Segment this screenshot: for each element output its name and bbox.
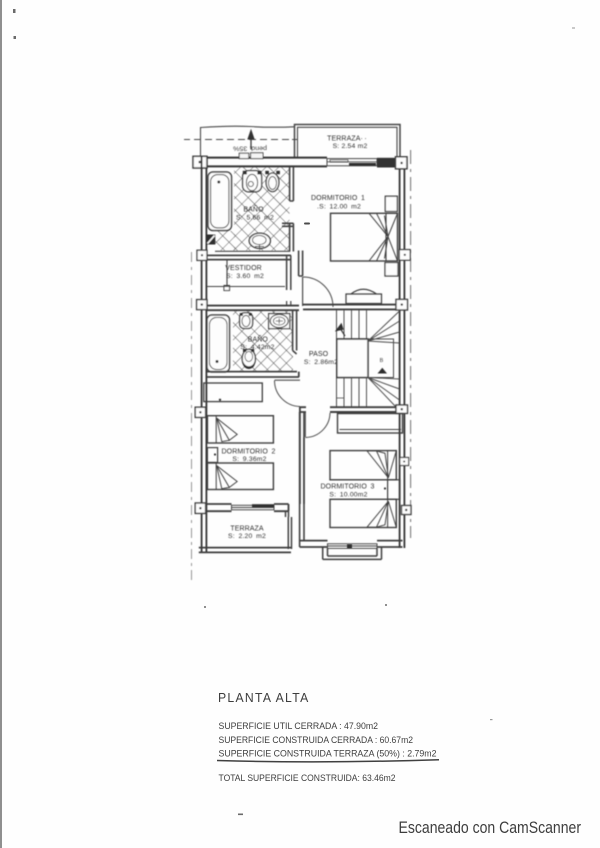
svg-text:B: B xyxy=(380,358,384,364)
svg-text:SUPERFICIE CONSTRUIDA TERRAZA: SUPERFICIE CONSTRUIDA TERRAZA (50%) : 2.… xyxy=(219,749,437,759)
svg-text:.S: 12.00 m2: .S: 12.00 m2 xyxy=(317,203,361,210)
svg-text:S: 2.54 m2: S: 2.54 m2 xyxy=(333,143,368,150)
svg-text:DORMITORIO 2: DORMITORIO 2 xyxy=(222,449,276,456)
svg-text:S: 9.36m2: S: 9.36m2 xyxy=(232,456,266,463)
svg-text:pend. 35%: pend. 35% xyxy=(233,145,267,152)
svg-text:TOTAL SUPERFICIE CONSTRUIDA: 6: TOTAL SUPERFICIE CONSTRUIDA: 63.46m2 xyxy=(219,773,396,783)
svg-text:PLANTA ALTA: PLANTA ALTA xyxy=(218,690,310,705)
svg-text:S: 4.42m2: S: 4.42m2 xyxy=(240,344,274,351)
svg-text:S: 2.86m2: S: 2.86m2 xyxy=(304,359,338,366)
svg-text:BAÑO: BAÑO xyxy=(247,335,268,344)
svg-text:DORMITORIO 3: DORMITORIO 3 xyxy=(321,484,375,491)
svg-text:S: 2.20 m2: S: 2.20 m2 xyxy=(228,533,266,540)
svg-text:PASO: PASO xyxy=(309,351,329,358)
svg-text:VESTIDOR: VESTIDOR xyxy=(225,265,262,272)
svg-text:DORMITORIO 1: DORMITORIO 1 xyxy=(311,195,365,202)
svg-text:TERRAZA: TERRAZA xyxy=(230,526,264,533)
svg-text:S: 5.66 m2: S: 5.66 m2 xyxy=(236,215,274,222)
svg-text:S: 10.00m2: S: 10.00m2 xyxy=(329,492,367,499)
svg-text:SUPERFICIE UTIL CERRADA : 47.9: SUPERFICIE UTIL CERRADA : 47.90m2 xyxy=(219,721,379,731)
svg-text:SUPERFICIE CONSTRUIDA CERRADA: SUPERFICIE CONSTRUIDA CERRADA : 60.67m2 xyxy=(219,735,414,745)
svg-text:Escaneado con CamScanner: Escaneado con CamScanner xyxy=(399,819,582,837)
svg-text:TERRAZA· ·: TERRAZA· · xyxy=(327,136,367,143)
svg-text:S: 3.60 m2: S: 3.60 m2 xyxy=(226,273,264,280)
svg-text:BAÑO: BAÑO xyxy=(243,205,264,214)
